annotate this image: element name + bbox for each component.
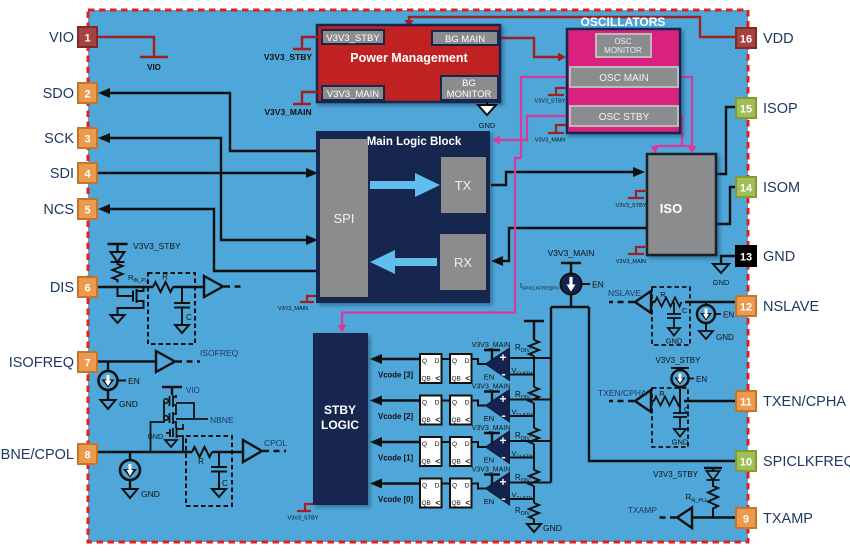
svg-text:+: + bbox=[499, 392, 506, 406]
svg-text:10: 10 bbox=[740, 457, 752, 469]
svg-text:Power Management: Power Management bbox=[350, 51, 468, 65]
svg-text:ISOM: ISOM bbox=[763, 180, 800, 196]
svg-text:TX: TX bbox=[455, 178, 472, 193]
svg-text:V3V3_STBY: V3V3_STBY bbox=[616, 203, 647, 209]
svg-text:NSLAVE: NSLAVE bbox=[763, 299, 819, 315]
svg-text:ISO: ISO bbox=[660, 201, 682, 216]
svg-text:DIS: DIS bbox=[50, 280, 74, 296]
svg-text:16: 16 bbox=[740, 34, 752, 46]
svg-text:C: C bbox=[684, 405, 690, 414]
svg-text:C: C bbox=[222, 479, 228, 488]
svg-text:-: - bbox=[501, 366, 505, 381]
svg-text:EN: EN bbox=[723, 311, 734, 320]
svg-text:2: 2 bbox=[84, 89, 90, 101]
svg-text:GND: GND bbox=[141, 489, 160, 499]
svg-text:V3V3_MAIN: V3V3_MAIN bbox=[548, 248, 595, 258]
svg-text:MONITOR: MONITOR bbox=[604, 46, 642, 55]
svg-text:RX: RX bbox=[454, 255, 472, 270]
svg-text:V3V3_MAIN: V3V3_MAIN bbox=[535, 138, 565, 144]
svg-text:TXEN/CPHA: TXEN/CPHA bbox=[763, 394, 846, 410]
svg-text:Q: Q bbox=[422, 441, 427, 448]
svg-text:11: 11 bbox=[740, 397, 752, 409]
svg-text:9: 9 bbox=[743, 514, 749, 526]
svg-text:D: D bbox=[465, 358, 470, 365]
svg-text:1: 1 bbox=[84, 33, 90, 45]
svg-text:<: < bbox=[465, 499, 470, 508]
svg-text:BG: BG bbox=[462, 78, 476, 89]
svg-text:R: R bbox=[162, 273, 168, 282]
svg-text:+: + bbox=[499, 351, 506, 365]
svg-text:V3V3_MAIN: V3V3_MAIN bbox=[472, 467, 511, 474]
svg-text:GND: GND bbox=[147, 434, 163, 441]
svg-text:+: + bbox=[499, 434, 506, 448]
svg-text:OSCILLATORS: OSCILLATORS bbox=[581, 15, 666, 29]
svg-text:Vcode [2]: Vcode [2] bbox=[378, 412, 413, 421]
svg-text:-: - bbox=[501, 491, 505, 506]
svg-text:Vcode [0]: Vcode [0] bbox=[378, 495, 413, 504]
svg-text:ISOP: ISOP bbox=[763, 101, 798, 117]
svg-text:Q: Q bbox=[452, 441, 457, 448]
svg-text:OSC MAIN: OSC MAIN bbox=[599, 73, 648, 84]
svg-text:6: 6 bbox=[84, 283, 90, 295]
svg-text:VIO: VIO bbox=[147, 63, 161, 72]
svg-text:TXAMP: TXAMP bbox=[628, 505, 658, 515]
svg-text:V3V3_STBY: V3V3_STBY bbox=[535, 99, 566, 105]
svg-text:15: 15 bbox=[740, 104, 752, 116]
svg-text:5: 5 bbox=[84, 205, 90, 217]
svg-text:GND: GND bbox=[672, 438, 689, 447]
svg-text:Vcode [1]: Vcode [1] bbox=[378, 454, 413, 463]
svg-text:-: - bbox=[501, 449, 505, 464]
svg-text:QB: QB bbox=[422, 459, 431, 466]
svg-text:V3V3_MAIN: V3V3_MAIN bbox=[472, 342, 511, 349]
svg-text:EN: EN bbox=[484, 414, 494, 423]
svg-text:SPICLKFREQ: SPICLKFREQ bbox=[763, 454, 850, 470]
svg-text:7: 7 bbox=[84, 358, 90, 370]
svg-text:MONITOR: MONITOR bbox=[447, 89, 492, 100]
svg-text:GND: GND bbox=[479, 121, 496, 130]
svg-text:VIO: VIO bbox=[49, 30, 74, 46]
svg-text:QB: QB bbox=[422, 376, 431, 383]
svg-text:V3V3_STBY: V3V3_STBY bbox=[133, 241, 181, 251]
svg-text:BG MAIN: BG MAIN bbox=[445, 34, 485, 45]
svg-text:NSLAVE: NSLAVE bbox=[608, 288, 641, 298]
svg-text:V3V3_STBY: V3V3_STBY bbox=[288, 516, 319, 522]
svg-text:Main Logic Block: Main Logic Block bbox=[367, 136, 462, 148]
svg-text:<: < bbox=[435, 374, 440, 383]
svg-text:QB: QB bbox=[452, 459, 461, 466]
svg-text:CPOL: CPOL bbox=[264, 438, 287, 448]
svg-text:<: < bbox=[465, 416, 470, 425]
svg-text:NBNE: NBNE bbox=[210, 415, 234, 425]
svg-text:V3V3_MAIN: V3V3_MAIN bbox=[472, 425, 511, 432]
svg-text:13: 13 bbox=[740, 252, 752, 264]
svg-text:D: D bbox=[435, 483, 440, 490]
svg-text:V3V3_STBY: V3V3_STBY bbox=[653, 470, 699, 479]
svg-text:SDO: SDO bbox=[43, 86, 74, 102]
svg-text:QB: QB bbox=[452, 376, 461, 383]
svg-text:GND: GND bbox=[716, 333, 734, 342]
svg-text:QB: QB bbox=[422, 417, 431, 424]
svg-text:GND: GND bbox=[543, 523, 562, 533]
svg-text:ISOFREQ: ISOFREQ bbox=[200, 348, 239, 358]
svg-text:R: R bbox=[660, 290, 666, 299]
svg-text:GND: GND bbox=[713, 278, 730, 287]
svg-text:4: 4 bbox=[84, 169, 91, 181]
svg-text:V3V3_STBY: V3V3_STBY bbox=[264, 52, 313, 62]
svg-text:Q: Q bbox=[422, 400, 427, 407]
svg-text:V3V3_MAIN: V3V3_MAIN bbox=[472, 384, 511, 391]
svg-text:EN: EN bbox=[484, 373, 494, 382]
svg-text:EN: EN bbox=[128, 376, 140, 386]
svg-text:Q: Q bbox=[452, 483, 457, 490]
svg-text:D: D bbox=[465, 483, 470, 490]
svg-text:GND: GND bbox=[119, 399, 138, 409]
svg-text:V3V3_MAIN: V3V3_MAIN bbox=[278, 306, 308, 312]
svg-text:D: D bbox=[435, 400, 440, 407]
svg-text:C: C bbox=[186, 313, 192, 322]
svg-text:D: D bbox=[435, 358, 440, 365]
svg-text:D: D bbox=[465, 400, 470, 407]
svg-text:SCK: SCK bbox=[44, 131, 74, 147]
svg-text:-: - bbox=[501, 408, 505, 423]
svg-text:14: 14 bbox=[740, 183, 753, 195]
svg-text:VDD: VDD bbox=[763, 31, 794, 47]
svg-text:V3V3_STBY: V3V3_STBY bbox=[326, 33, 380, 44]
svg-text:EN: EN bbox=[592, 280, 604, 290]
svg-text:V3V3_STBY: V3V3_STBY bbox=[656, 356, 702, 365]
svg-text:<: < bbox=[435, 416, 440, 425]
svg-text:TXAMP: TXAMP bbox=[763, 511, 813, 527]
svg-text:QB: QB bbox=[422, 500, 431, 507]
svg-text:STBY: STBY bbox=[324, 403, 356, 417]
svg-text:GND: GND bbox=[666, 337, 683, 346]
svg-text:V3V3_MAIN: V3V3_MAIN bbox=[264, 107, 311, 117]
svg-text:V3V3_MAIN: V3V3_MAIN bbox=[616, 259, 646, 265]
svg-text:EN: EN bbox=[696, 375, 707, 384]
svg-text:+: + bbox=[499, 475, 506, 489]
svg-text:C: C bbox=[682, 306, 688, 315]
svg-text:D: D bbox=[465, 441, 470, 448]
svg-text:R: R bbox=[198, 457, 204, 466]
svg-text:R: R bbox=[659, 389, 665, 398]
svg-text:TXEN/CPHA: TXEN/CPHA bbox=[598, 388, 647, 398]
svg-text:OSC STBY: OSC STBY bbox=[599, 112, 650, 123]
svg-text:ISOFREQ: ISOFREQ bbox=[9, 355, 74, 371]
svg-text:3: 3 bbox=[84, 134, 90, 146]
svg-text:QB: QB bbox=[452, 417, 461, 424]
svg-text:QB: QB bbox=[452, 500, 461, 507]
svg-text:<: < bbox=[435, 499, 440, 508]
svg-text:SPI: SPI bbox=[334, 211, 355, 226]
svg-text:V3V3_MAIN: V3V3_MAIN bbox=[327, 89, 379, 100]
svg-text:8: 8 bbox=[84, 450, 90, 462]
svg-text:Q: Q bbox=[422, 358, 427, 365]
svg-text:Q: Q bbox=[452, 358, 457, 365]
svg-text:Vcode [3]: Vcode [3] bbox=[378, 371, 413, 380]
svg-text:12: 12 bbox=[740, 302, 752, 314]
svg-text:<: < bbox=[465, 374, 470, 383]
svg-text:NCS: NCS bbox=[43, 202, 74, 218]
svg-text:<: < bbox=[465, 457, 470, 466]
svg-text:SDI: SDI bbox=[50, 166, 74, 182]
svg-text:EN: EN bbox=[484, 456, 494, 465]
svg-text:D: D bbox=[435, 441, 440, 448]
svg-text:<: < bbox=[435, 457, 440, 466]
svg-text:Q: Q bbox=[422, 483, 427, 490]
svg-text:EN: EN bbox=[484, 497, 494, 506]
svg-text:BNE/CPOL: BNE/CPOL bbox=[1, 447, 74, 463]
svg-text:LOGIC: LOGIC bbox=[321, 418, 359, 432]
svg-text:GND: GND bbox=[763, 249, 795, 265]
svg-text:Q: Q bbox=[452, 400, 457, 407]
svg-text:VIO: VIO bbox=[186, 386, 200, 395]
svg-text:OSC: OSC bbox=[614, 37, 632, 46]
